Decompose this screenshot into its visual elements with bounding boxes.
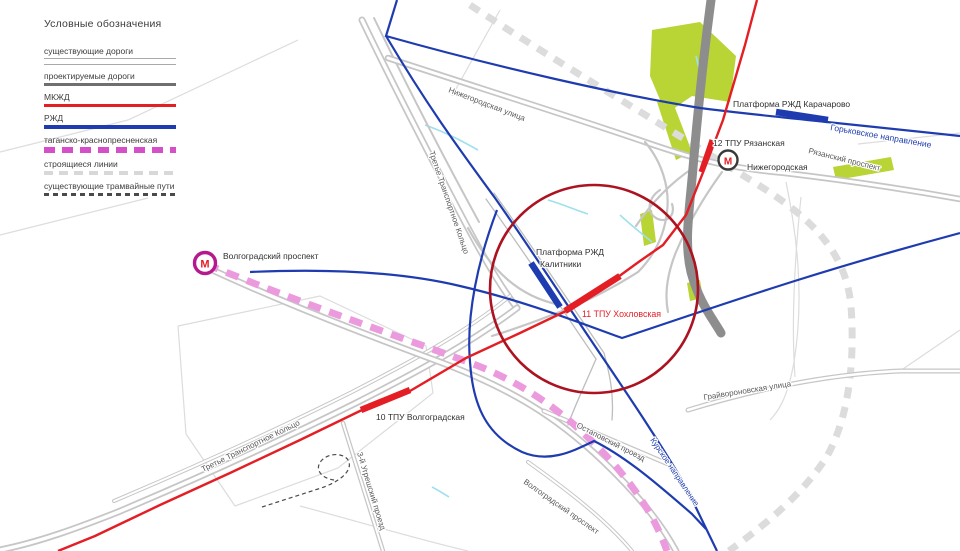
label-graivoronovskaya: Грайвороновская улица: [703, 379, 792, 402]
legend-swatch-under-construction: [44, 171, 176, 176]
metro-icon-nizhegorodskaya: М: [719, 151, 738, 170]
legend-item-rzhd: РЖД: [44, 113, 204, 128]
legend-item-tram: существующие трамвайные пути: [44, 181, 204, 196]
rzhd-connector-line: [469, 210, 706, 529]
metro-letter: М: [724, 157, 732, 168]
legend-item-existing-roads: существующие дороги: [44, 46, 204, 65]
legend-swatch-taganskaya: [44, 147, 176, 153]
label-nizhegorodskaya-station: Нижегородская: [747, 162, 808, 172]
tpu11-segment: [565, 276, 620, 311]
legend-item-mkzhd: МКЖД: [44, 92, 204, 107]
legend: Условные обозначения существующие дороги…: [44, 18, 204, 202]
platform-karacharovo-segment: [776, 112, 828, 120]
metro-letter: М: [200, 259, 209, 271]
legend-swatch-tram: [44, 193, 176, 196]
legend-title: Условные обозначения: [44, 18, 204, 30]
label-kalitniki-1: Платформа РЖД: [536, 247, 604, 257]
label-kalitniki-2: Калитники: [540, 259, 581, 269]
tram-loop: [262, 455, 349, 507]
legend-label: существующие дороги: [44, 46, 204, 56]
legend-swatch-mkzhd: [44, 104, 176, 107]
label-gorkovskoye: Горьковское направление: [830, 122, 933, 150]
label-tpu11: 11 ТПУ Хохловская: [582, 309, 661, 319]
label-tpu12: 12 ТПУ Рязанская: [713, 138, 785, 148]
legend-label: строящиеся линии: [44, 159, 204, 169]
legend-swatch-projected-roads: [44, 83, 176, 86]
metro-icon-volgogradsky: М: [195, 253, 216, 274]
legend-item-taganskaya: таганско-краснопресненская: [44, 135, 204, 153]
legend-item-under-construction: строящиеся линии: [44, 159, 204, 176]
legend-label: проектируемые дороги: [44, 71, 204, 81]
taganskaya-line: [206, 264, 667, 551]
legend-swatch-rzhd: [44, 125, 176, 128]
legend-swatch-existing-roads: [44, 58, 176, 65]
label-karacharovo: Платформа РЖД Карачарово: [733, 99, 850, 109]
label-kurskoye: Курское направление: [648, 436, 701, 508]
label-tpu10: 10 ТПУ Волгоградская: [376, 412, 465, 422]
legend-label: РЖД: [44, 113, 204, 123]
legend-item-projected-roads: проектируемые дороги: [44, 71, 204, 86]
legend-label: существующие трамвайные пути: [44, 181, 204, 191]
label-volgogradsky-metro: Волгоградский проспект: [223, 251, 319, 261]
transit-scheme-page: М М Платформа РЖД Карачарово Горьковское…: [0, 0, 960, 551]
legend-label: таганско-краснопресненская: [44, 135, 204, 145]
legend-label: МКЖД: [44, 92, 204, 102]
